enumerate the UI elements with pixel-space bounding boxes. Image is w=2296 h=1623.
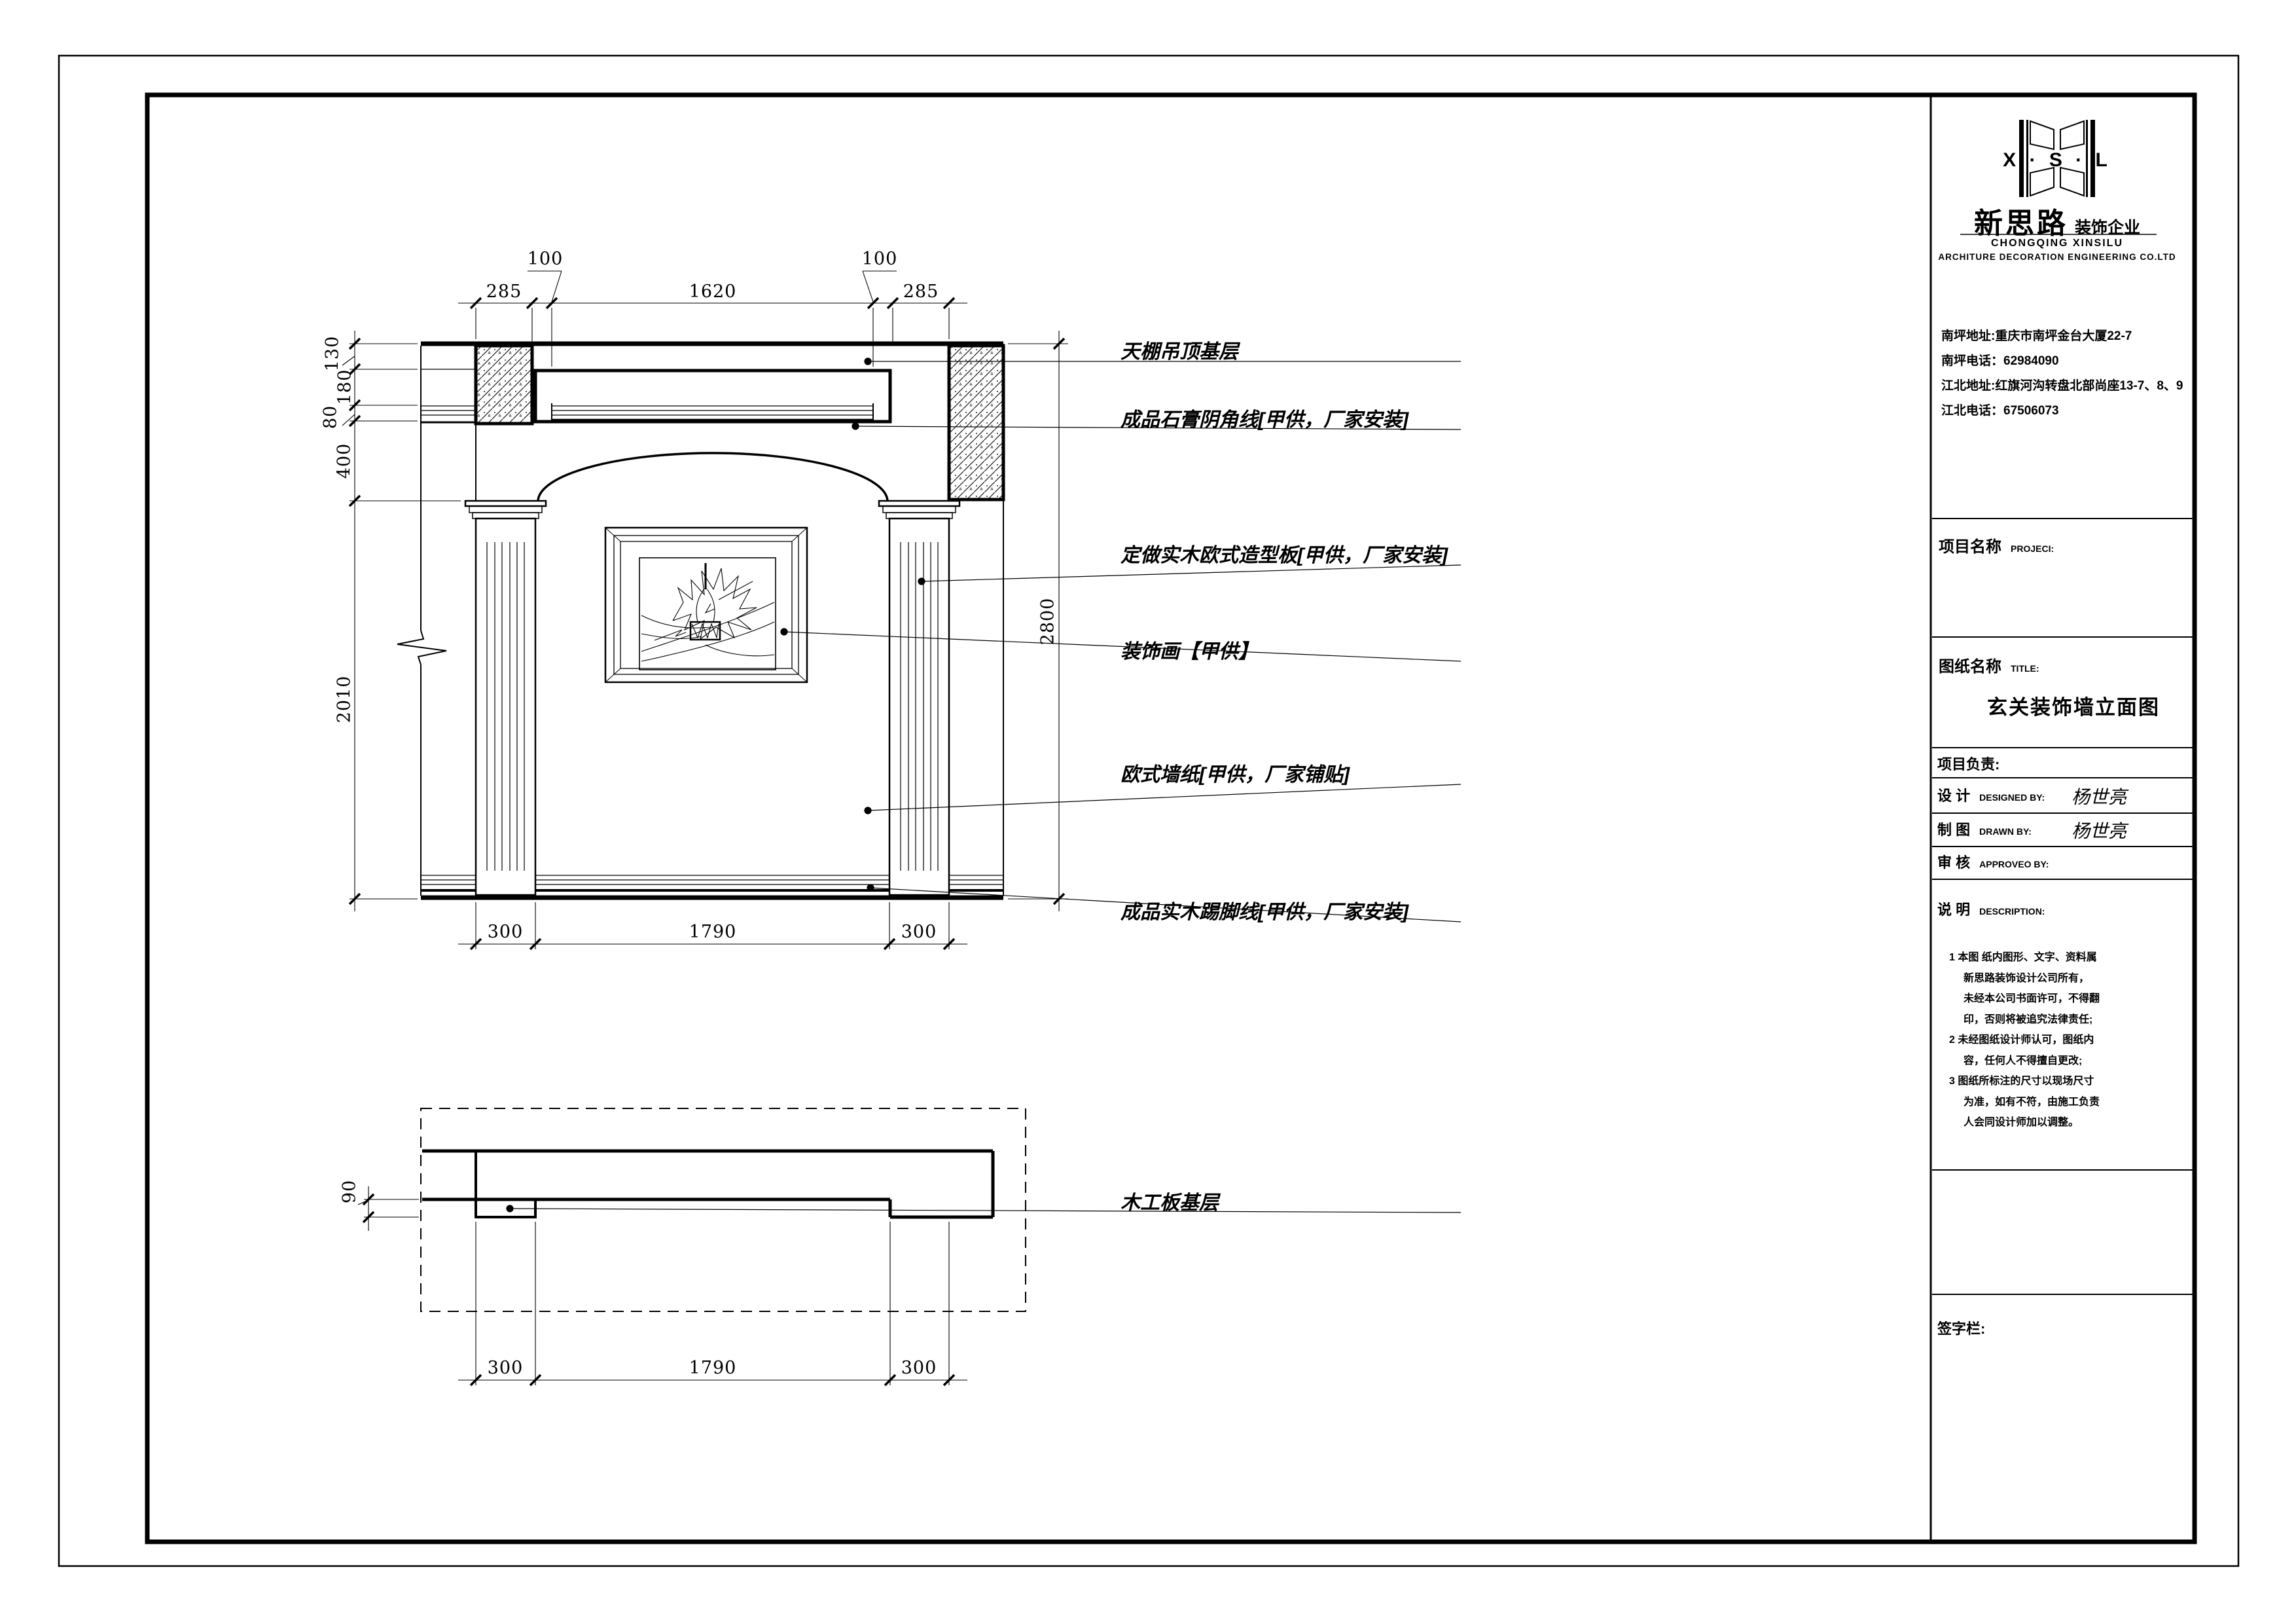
check-label-en: APPROVEO BY: <box>1979 859 2049 869</box>
note-label-en: DESCRIPTION: <box>1979 906 2045 917</box>
approved-by-row: 审 核 APPROVEO BY: <box>1937 851 2049 872</box>
note-line: 未经本公司书面许可，不得翻 <box>1964 989 2100 1005</box>
dim-top-285-right: 285 <box>903 282 939 302</box>
contact-line-3: 江北地址:红旗河沟转盘北部尚座13-7、8、9 <box>1941 376 2183 393</box>
note-line: 人会同设计师加以调整。 <box>1964 1113 2079 1129</box>
dim-top-1620: 1620 <box>689 282 737 302</box>
sheet-title: 玄关装饰墙立面图 <box>1987 691 2160 720</box>
note-line: 3 图纸所标注的尺寸以现场尺寸 <box>1949 1072 2094 1087</box>
dim-right-2800: 2800 <box>1038 598 1058 646</box>
note-line: 印，否则将被追究法律责任; <box>1964 1010 2092 1026</box>
project-label-en: PROJECI: <box>2011 543 2054 554</box>
project-name-row: 项目名称 PROJECI: <box>1939 534 2054 556</box>
annotation-skirting: 成品实木踢脚线[甲供，厂家安装] <box>1121 896 1408 924</box>
logo-xsl-text: X · S · L <box>2003 149 2111 172</box>
contact-line-1: 南坪地址:重庆市南坪金台大厦22-7 <box>1941 326 2132 344</box>
dim-left-80: 80 <box>321 405 341 429</box>
sheet-name-row: 图纸名称 TITLE: <box>1939 653 2039 676</box>
cad-linework <box>0 0 2296 1623</box>
sheet-borders <box>59 56 2238 1566</box>
picture-frame <box>605 528 807 682</box>
pilaster-flutes <box>487 542 938 871</box>
note-line: 1 本图 纸内图形、文字、资料属 <box>1949 948 2097 964</box>
dim-bottom-300-left: 300 <box>488 922 524 942</box>
check-label-cn: 审 核 <box>1937 851 1970 872</box>
annotation-wallpaper: 欧式墙纸[甲供，厂家铺贴] <box>1121 758 1350 787</box>
dim-left-2010: 2010 <box>334 676 355 723</box>
note-line: 新思路装饰设计公司所有， <box>1964 969 2089 985</box>
logo-city-en: CHONGQING XINSILU <box>1991 238 2123 249</box>
picture-artwork <box>641 563 774 661</box>
draft-label-cn: 制 图 <box>1937 818 1970 839</box>
note-line: 容，任何人不得擅自更改; <box>1964 1051 2082 1067</box>
drawing-sheet: 285 100 1620 100 285 130 180 80 400 2010… <box>0 0 2296 1623</box>
skirting-lines <box>421 875 1003 890</box>
dim-top-100-left: 100 <box>528 249 564 269</box>
signature-label: 签字栏: <box>1937 1317 1985 1338</box>
logo-name-suffix: 装饰企业 <box>2075 215 2140 238</box>
note-label-cn: 说 明 <box>1937 898 1970 919</box>
logo-name: 新思路 装饰企业 <box>1974 200 2140 242</box>
dim-bottom-1790: 1790 <box>689 922 737 942</box>
dim-left-180: 180 <box>335 369 355 405</box>
sheet-label-cn: 图纸名称 <box>1939 653 2001 676</box>
plan-dimensions <box>358 1186 967 1385</box>
dim-plan-300-left: 300 <box>488 1358 524 1378</box>
draft-label-en: DRAWN BY: <box>1979 826 2032 837</box>
description-row: 说 明 DESCRIPTION: <box>1937 898 2045 919</box>
designed-by-row: 设 计 DESIGNED BY: <box>1937 784 2045 805</box>
dim-left-400: 400 <box>334 443 355 479</box>
annotation-plan-board: 木工板基层 <box>1121 1186 1219 1215</box>
contact-line-2: 南坪电话：62984090 <box>1941 351 2059 369</box>
drafter-name: 杨世亮 <box>2072 817 2126 843</box>
annotation-ceiling: 天棚吊顶基层 <box>1121 335 1238 364</box>
designer-name: 杨世亮 <box>2072 783 2126 809</box>
contact-line-4: 江北电话：67506073 <box>1941 401 2059 418</box>
dim-bottom-300-right: 300 <box>901 922 937 942</box>
annotation-cornice: 成品石膏阴角线[甲供，厂家安装] <box>1121 403 1408 432</box>
annotation-painting: 装饰画【甲供】 <box>1121 635 1258 664</box>
dim-top-285-left: 285 <box>486 282 522 302</box>
logo-company-en: ARCHITURE DECORATION ENGINEERING CO.LTD <box>1938 252 2176 262</box>
project-label-cn: 项目名称 <box>1939 534 2001 556</box>
design-label-cn: 设 计 <box>1937 784 1970 805</box>
design-label-en: DESIGNED BY: <box>1979 792 2045 803</box>
dim-plan-300-right: 300 <box>901 1358 937 1378</box>
dim-left-130: 130 <box>323 336 343 372</box>
annotation-panel: 定做实木欧式造型板[甲供，厂家安装] <box>1121 539 1448 568</box>
sheet-label-en: TITLE: <box>2011 663 2039 674</box>
dim-top-100-right: 100 <box>862 249 898 269</box>
project-lead-label: 项目负责: <box>1937 753 2000 774</box>
note-line: 为准，如有不符，由施工负责 <box>1964 1093 2100 1108</box>
dim-plan-90: 90 <box>340 1180 360 1203</box>
logo-name-cn: 新思路 <box>1974 200 2068 242</box>
dim-plan-1790: 1790 <box>689 1358 737 1378</box>
note-line: 2 未经图纸设计师认可，图纸内 <box>1949 1030 2094 1046</box>
drawn-by-row: 制 图 DRAWN BY: <box>1937 818 2032 839</box>
